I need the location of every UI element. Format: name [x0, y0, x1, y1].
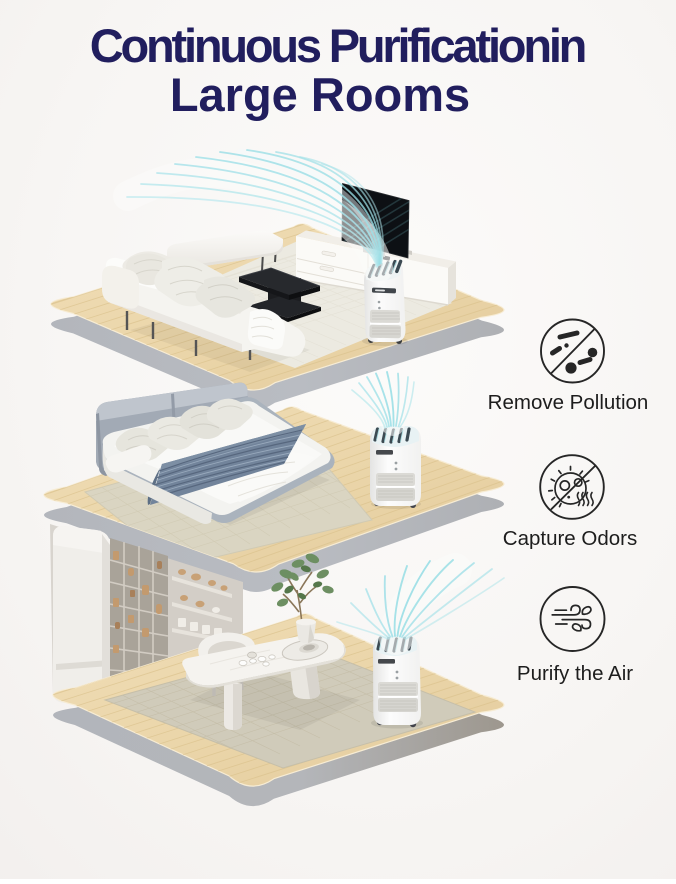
svg-text:Purify the Air: Purify the Air [517, 662, 633, 685]
svg-text:Continuous Purificationin: Continuous Purificationin [90, 19, 585, 72]
svg-text:Capture Odors: Capture Odors [503, 527, 637, 550]
svg-text:Large Rooms: Large Rooms [170, 68, 470, 121]
svg-text:Remove Pollution: Remove Pollution [488, 391, 649, 414]
